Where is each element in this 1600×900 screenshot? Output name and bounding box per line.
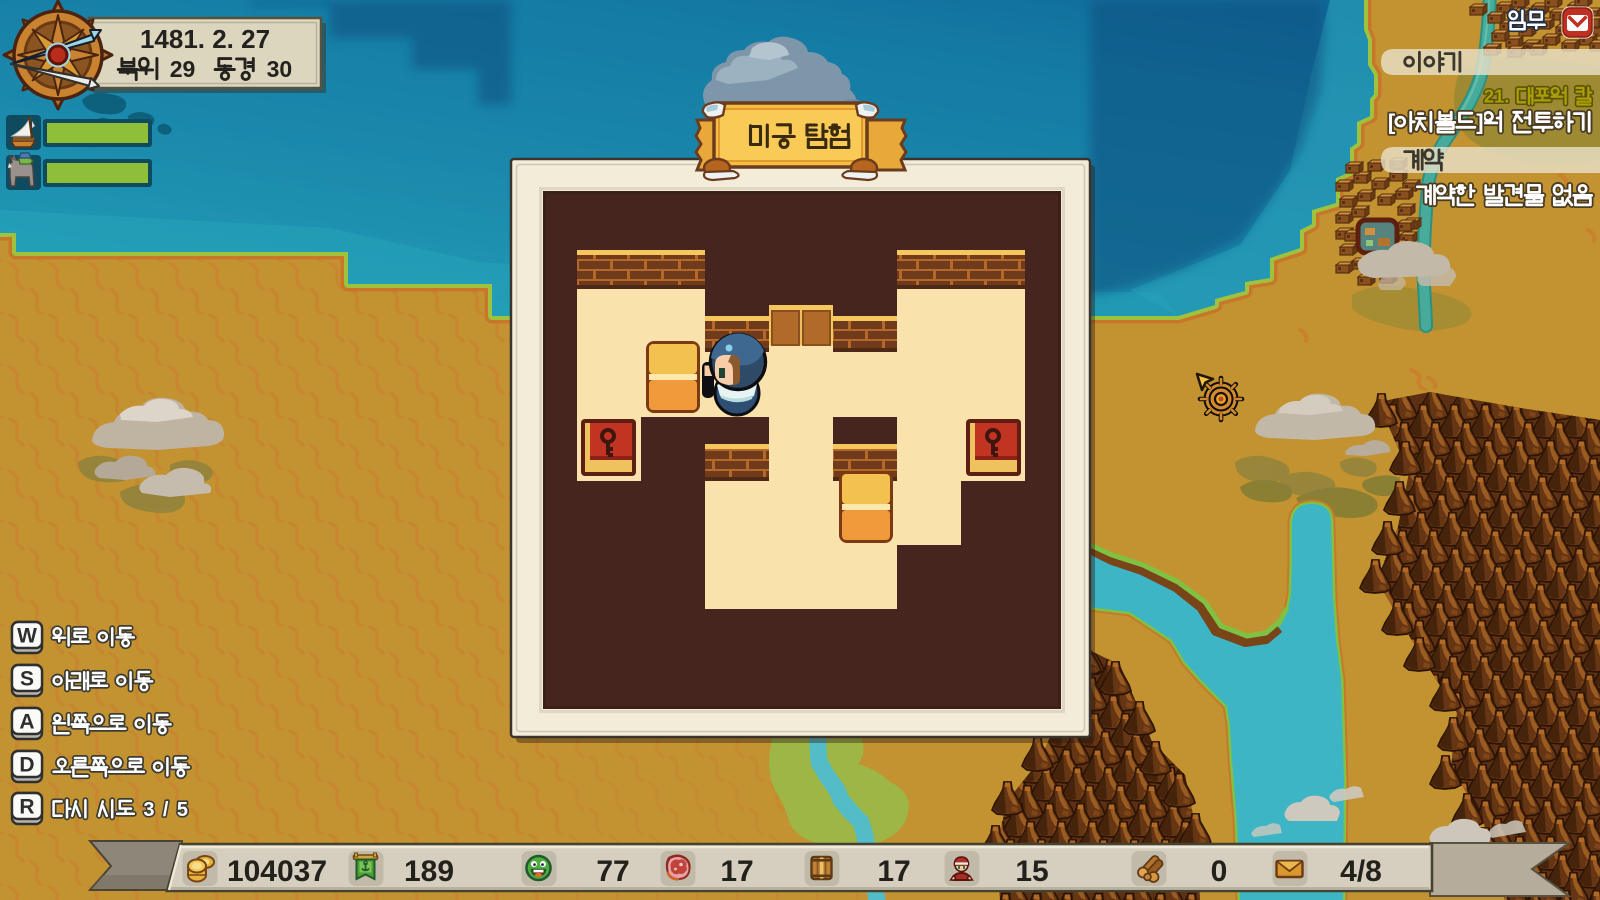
svg-text:0: 0 bbox=[1211, 855, 1228, 888]
svg-text:0: 0 bbox=[279, 56, 292, 82]
svg-text:A: A bbox=[19, 711, 34, 734]
svg-text:189: 189 bbox=[404, 855, 454, 888]
svg-text:1481. 2. 27: 1481. 2. 27 bbox=[140, 24, 270, 54]
svg-text:2: 2 bbox=[170, 56, 183, 82]
svg-text:[: [ bbox=[1388, 110, 1396, 135]
svg-text:4/8: 4/8 bbox=[1340, 855, 1382, 888]
svg-text:]: ] bbox=[1476, 110, 1483, 135]
svg-text:R: R bbox=[19, 796, 34, 819]
svg-text:77: 77 bbox=[596, 855, 629, 888]
svg-text:3: 3 bbox=[143, 799, 154, 821]
svg-text:104037: 104037 bbox=[227, 855, 327, 888]
svg-text:15: 15 bbox=[1015, 855, 1048, 888]
svg-text:17: 17 bbox=[877, 855, 910, 888]
svg-text:5: 5 bbox=[177, 799, 188, 821]
svg-text:S: S bbox=[20, 668, 34, 691]
svg-text:9: 9 bbox=[183, 56, 196, 82]
svg-text:/: / bbox=[163, 799, 169, 821]
svg-text:17: 17 bbox=[720, 855, 753, 888]
svg-text:3: 3 bbox=[267, 56, 280, 82]
svg-text:1: 1 bbox=[1494, 85, 1504, 106]
svg-text:D: D bbox=[19, 754, 34, 777]
svg-text:2: 2 bbox=[1484, 85, 1494, 106]
svg-text:W: W bbox=[17, 625, 37, 648]
svg-text:.: . bbox=[1504, 85, 1509, 106]
